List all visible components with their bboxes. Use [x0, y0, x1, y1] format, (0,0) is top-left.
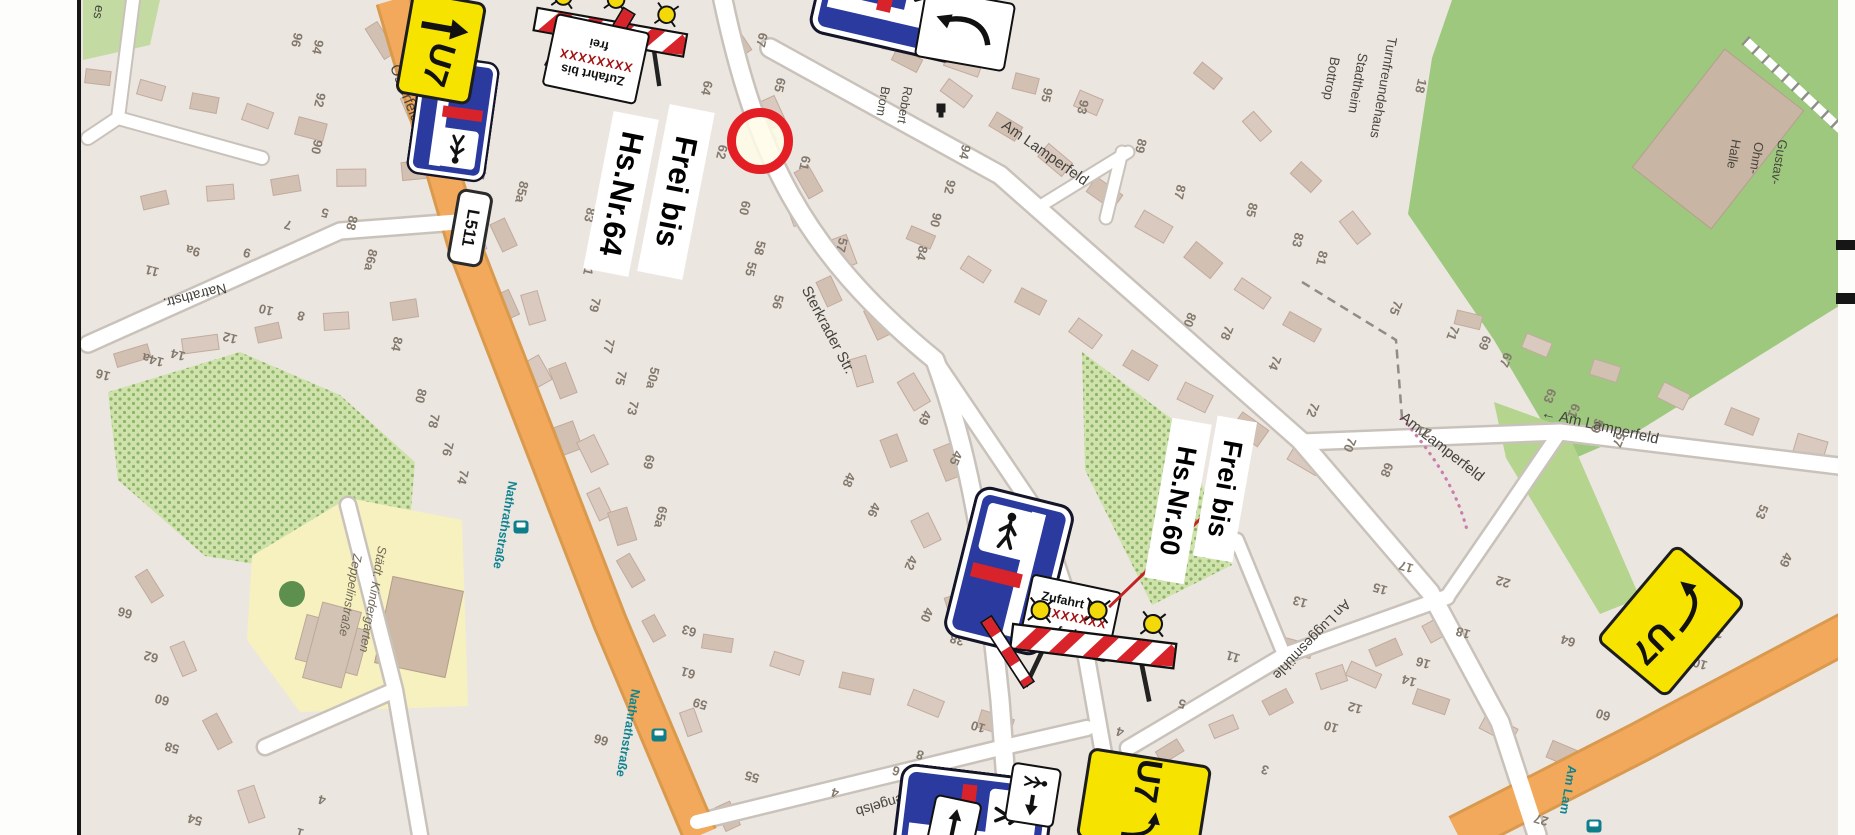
house-number: 63 [1540, 386, 1559, 405]
scan-right-margin [1838, 0, 1855, 835]
street-label: Am Lamperfeld [998, 117, 1091, 189]
house-number: 95 [1038, 86, 1056, 103]
house-number: 53 [1752, 502, 1771, 521]
house-number: 12 [1346, 699, 1364, 718]
house-number: 11 [143, 262, 160, 280]
house-number: 14 [1400, 672, 1418, 691]
house-number: 5 [320, 205, 331, 221]
house-number: 59 [691, 695, 709, 714]
house-number: 60 [1594, 706, 1612, 725]
house-number: 67 [753, 31, 771, 48]
house-number: 81 [1313, 249, 1331, 266]
house-number: 48 [839, 470, 858, 489]
house-number: 66 [116, 604, 134, 622]
house-number: 78 [1217, 323, 1236, 342]
house-number: 65 [771, 76, 789, 93]
house-number: 92 [311, 91, 329, 108]
house-number: 75 [612, 369, 630, 386]
memorial-icon [937, 104, 946, 113]
street-label: Nathrathstraße [613, 688, 642, 778]
house-number: 9 [242, 245, 253, 261]
house-number: 69 [640, 453, 658, 470]
house-number: 16 [94, 366, 112, 384]
house-number: 75 [1386, 298, 1405, 317]
house-number: 64 [698, 79, 716, 96]
street-label: An Luggesmühle [1270, 597, 1355, 684]
house-number: 10 [1322, 718, 1340, 737]
house-number: 79 [586, 296, 604, 313]
house-number: 61 [679, 664, 697, 683]
pedestrian-arrow-sign [1004, 761, 1063, 828]
house-number: 8 [914, 747, 925, 763]
house-number: 17 [1397, 558, 1415, 577]
house-number: 63 [680, 622, 698, 641]
bus-stop-icon [514, 521, 529, 534]
curved-arrow-icon [1112, 802, 1169, 835]
house-number: 5 [1176, 696, 1187, 712]
street-label: Sterkrader Str. [798, 283, 858, 376]
house-number: 65a [651, 505, 670, 530]
street-label: Am Lam [1557, 764, 1579, 815]
scan-mark [1836, 240, 1855, 250]
street-label: Am Lamperfeld [1397, 409, 1488, 485]
house-number: 46 [864, 500, 883, 519]
house-number: 87 [1171, 183, 1189, 200]
road-closure-circle [727, 108, 793, 174]
house-number: 89 [1132, 137, 1150, 154]
poi-label: Städt. KindergartenZeppelinstraße [329, 540, 393, 654]
house-number: 57 [833, 236, 851, 253]
house-number: 84 [913, 244, 931, 261]
scanned-traffic-plan-map: Osterfelder Str.Natrathstr.Sterkrader St… [0, 0, 1855, 835]
house-number: 27 [1532, 811, 1550, 830]
scan-mark [1836, 293, 1855, 304]
house-number: 92 [941, 178, 959, 195]
house-number: 55 [743, 768, 761, 787]
house-number: 86a [361, 248, 380, 273]
house-number: 14 [169, 346, 187, 364]
scan-frame-line [77, 0, 81, 835]
house-number: 50a [643, 366, 662, 391]
house-number: 55 [742, 260, 760, 277]
street-label: Natrathstr. [162, 280, 229, 311]
house-number: 12 [221, 329, 239, 347]
walker-arrow-icon [1012, 769, 1053, 822]
house-number: 8 [296, 308, 307, 324]
house-number: 74 [454, 468, 472, 485]
house-number: 73 [624, 399, 642, 416]
house-number: 14a [141, 350, 166, 370]
house-number: 60 [736, 199, 754, 216]
house-number: 4 [829, 785, 840, 801]
poi-label: TurnfreundehausStadtheimBottrop [1309, 26, 1405, 140]
house-number: 54 [186, 811, 204, 829]
curved-arrow-icon [928, 0, 1002, 60]
house-number: 58 [163, 739, 181, 757]
house-number: 1 [295, 825, 306, 835]
house-number: 18 [1412, 77, 1430, 94]
house-number: 96 [288, 31, 306, 48]
house-number: 18 [1454, 624, 1472, 643]
house-number: 62 [142, 648, 160, 666]
house-number: 90 [927, 211, 945, 228]
house-number: 13 [1291, 593, 1309, 612]
house-number: 16 [1414, 654, 1432, 673]
house-number: 74 [1265, 353, 1284, 372]
house-number: 88 [343, 214, 361, 231]
poi-label: RobertBrom [868, 81, 918, 126]
house-number: 84 [388, 335, 406, 352]
map-labels-layer: Osterfelder Str.Natrathstr.Sterkrader St… [0, 0, 1855, 835]
house-number: 10 [969, 718, 987, 737]
house-number: 49 [915, 408, 934, 427]
house-number: 83 [1289, 231, 1307, 248]
house-number: 67 [1496, 350, 1515, 369]
detour-route-label: U7 [413, 37, 463, 90]
house-number: 68 [1377, 460, 1396, 479]
house-number: 15 [1371, 580, 1389, 599]
house-number: 76 [439, 440, 457, 457]
house-number: 9a [184, 242, 202, 260]
house-number: 49 [1776, 550, 1795, 569]
house-number: 40 [917, 605, 936, 624]
bus-stop-icon [652, 729, 667, 742]
house-number: 70 [1340, 435, 1359, 454]
house-number: 10 [257, 301, 275, 319]
house-number: 93 [1074, 98, 1092, 115]
barrier-icon [1002, 586, 1183, 710]
house-number: 66 [592, 731, 610, 750]
house-number: 45 [946, 448, 965, 467]
house-number: 4 [1114, 724, 1125, 740]
house-number: 90 [308, 138, 326, 155]
house-number: 94 [956, 143, 974, 160]
house-number: 64 [1559, 632, 1577, 651]
house-number: 58 [751, 239, 769, 256]
house-number: 42 [901, 553, 920, 572]
house-number: 78 [425, 412, 443, 429]
house-number: 7 [283, 217, 294, 233]
house-number: 3 [1259, 762, 1270, 778]
poi-label: Gustav-Ohm-Halle [1718, 130, 1793, 187]
house-number: 56 [769, 293, 787, 310]
house-number: 85 [1243, 201, 1261, 218]
scan-left-margin [0, 0, 77, 835]
house-number: 71 [1443, 323, 1462, 342]
up-arrow-icon [941, 805, 968, 835]
street-label: es [90, 4, 107, 20]
house-number: 11 [1224, 648, 1242, 666]
house-number: 77 [600, 337, 618, 354]
house-number: 69 [1475, 333, 1494, 352]
house-number: 80 [1180, 310, 1199, 329]
house-number: 72 [1303, 400, 1322, 419]
house-number: 22 [1494, 573, 1512, 592]
house-number: 85a [512, 180, 531, 205]
house-number: 94 [309, 38, 327, 55]
house-number: 4 [317, 792, 328, 808]
house-number: 61 [796, 154, 814, 171]
bus-stop-icon [1587, 820, 1602, 833]
house-number: 60 [153, 691, 171, 709]
house-number: 80 [412, 387, 430, 404]
